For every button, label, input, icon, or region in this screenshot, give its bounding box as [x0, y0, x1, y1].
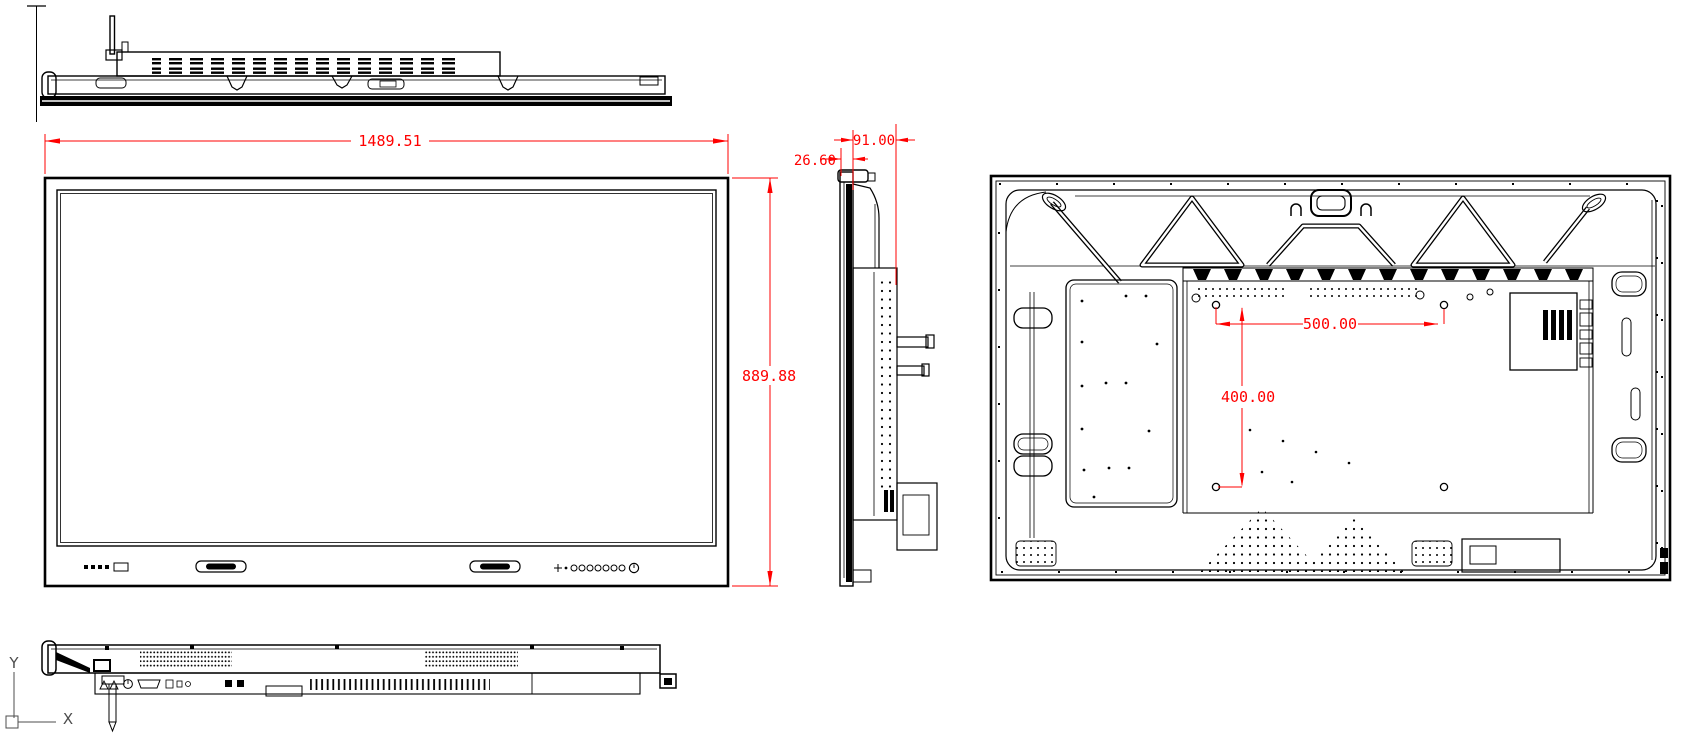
dim-front-height: 889.88	[732, 178, 796, 586]
back-bottom-right	[1412, 539, 1560, 572]
vga-port-icon	[138, 680, 160, 688]
ucs-x-label: X	[63, 710, 73, 728]
dim-side-depths: 26.60 91.00	[794, 124, 915, 285]
back-handle	[1291, 190, 1371, 216]
back-view: 500.00 400.00	[991, 176, 1670, 580]
mount-rail	[1183, 268, 1593, 300]
connector-panel	[1510, 293, 1592, 370]
ucs-axis-icon: Y X	[6, 654, 73, 728]
bottom-view	[42, 641, 676, 731]
side-view	[838, 170, 937, 586]
vent-module	[117, 52, 500, 76]
dim-panel-depth-text: 26.60	[794, 153, 836, 169]
side-bottom-bracket	[853, 483, 937, 582]
dim-front-height-text: 889.88	[742, 367, 796, 385]
front-speaker-center	[470, 561, 520, 572]
connector-shelf	[95, 673, 640, 696]
front-view	[45, 178, 728, 586]
mount-peg-upper	[897, 335, 934, 348]
ucs-y-label: Y	[8, 654, 19, 672]
drawing-svg: 1489.51 889.88	[0, 0, 1707, 733]
top-chassis-bar	[42, 72, 665, 98]
front-speaker-left	[196, 561, 246, 572]
back-right-details	[1612, 200, 1668, 574]
stylus-pen	[102, 676, 124, 731]
dim-vesa-height-text: 400.00	[1221, 388, 1275, 406]
dim-vesa-width-text: 500.00	[1303, 315, 1357, 333]
front-touch-buttons	[554, 563, 639, 572]
technical-drawing-canvas: 1489.51 889.88	[0, 0, 1707, 733]
dim-vesa: 500.00 400.00	[1216, 307, 1444, 487]
vent-perforations	[1200, 508, 1408, 572]
vent-slot-strip	[310, 679, 490, 690]
front-bezel-indicators	[84, 563, 128, 571]
bottom-speaker-right	[425, 650, 518, 668]
top-view	[40, 16, 672, 106]
dim-total-depth-text: 91.00	[853, 133, 895, 149]
glass-edge-band	[40, 96, 672, 106]
bottom-speaker-left	[140, 650, 232, 668]
power-button-icon	[629, 563, 638, 572]
mount-peg-lower	[897, 364, 929, 376]
dim-front-width: 1489.51	[45, 132, 728, 174]
ops-panel	[1066, 280, 1177, 507]
back-left-details	[1014, 292, 1056, 566]
dim-front-width-text: 1489.51	[358, 132, 421, 150]
corner-brace	[56, 652, 90, 673]
